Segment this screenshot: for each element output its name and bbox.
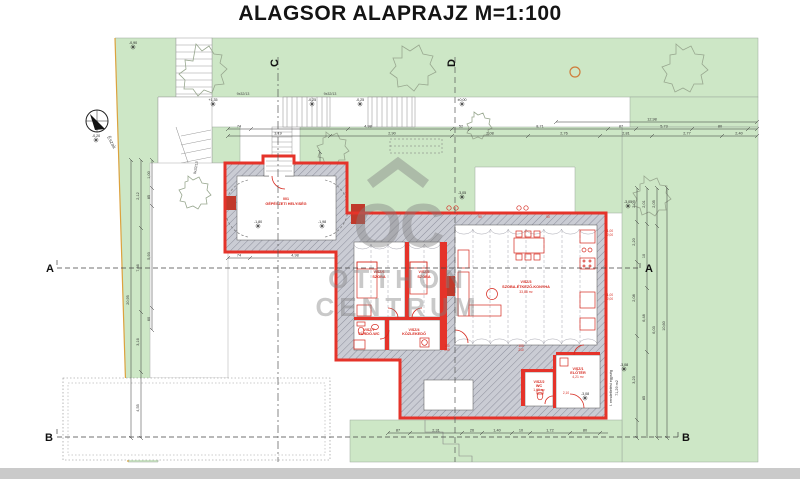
dimension-value: 1,00 [147,171,151,178]
dimension-value: 1,72 [546,429,553,433]
room-label-name: GÉPÉSZETI HELYISÉG [265,201,306,206]
section-label-a-right: A [645,263,653,275]
elevation-value: -3,05 [624,200,632,204]
door-size-label: 90 [478,215,482,219]
unit-note-line1: I. rendeltetési egység [609,370,613,406]
dimension-value: 2,08 [632,294,636,301]
green-mid-left [212,127,240,163]
elevation-value: ±0,00 [458,98,467,102]
stair-note: 9x32/13 [324,92,337,96]
dimension-value: 2,05 [632,200,636,207]
dimension-value: 3,16 [136,338,140,345]
dimension-value: 26 [470,429,474,433]
door-size-label: 2,00 [607,297,613,301]
dimension-value: 4,55 [136,404,140,411]
dimension-value: 2,40 [735,132,742,136]
spot-elevation: -0,20 [92,134,100,143]
elevation-value: -0,25 [356,98,364,102]
dimension-value: 5,93 [147,252,151,259]
door-size-label: 90 [546,215,550,219]
green-bottom-band [350,420,622,462]
section-label-b-left: B [45,432,53,444]
unit-note-line2: 71,29 m2 [615,380,619,396]
dimension-value: 3,23 [632,376,636,383]
dimension-value: 87 [396,429,400,433]
section-label-b-right: B [682,432,690,444]
elevation-value: -3,08 [620,363,628,367]
elevation-value: -0,20 [92,134,100,138]
chimney-block [225,196,236,210]
room-label-id: V/SZ/3 [521,280,532,284]
floorplan-drawing: 12,98744,98528,71875,73803,192,902,082,7… [0,0,800,468]
room-label-area: 33,88 m² [519,290,533,294]
elevation-value: -3,08 [581,392,589,396]
dimension-value: 2,20 [632,238,636,245]
dimension-value: 2,12 [136,192,140,199]
dimension-value: 20,95 [126,295,130,305]
dimension-value: 60 [147,317,151,321]
dimension-value: 5,73 [660,125,667,129]
elevation-value: -0,90 [129,41,137,45]
room-label-area: 1,60 m² [533,388,545,392]
light-well [424,380,473,410]
door-size-label: 2,00 [607,233,613,237]
dimension-value: 74 [237,254,241,258]
dimension-value: 2,76 [560,132,567,136]
dimension-value: 4,98 [364,125,371,129]
elevation-value: -1,98 [318,220,326,224]
dimension-value: 8,71 [536,125,543,129]
room-label-area: 4,21 m² [572,375,584,379]
section-label-a-left: A [46,263,54,275]
spot-elevation: -0,25 [356,98,364,107]
stair-block-2 [368,97,415,127]
dimension-chain: 744,98 [226,254,345,261]
room-eloter [556,355,600,408]
dimension-value: 80 [718,125,722,129]
dimension-value: 4,98 [291,254,298,258]
elevation-value: -3,05 [458,191,466,195]
door-gap [269,174,285,179]
green-top-right [630,97,758,127]
dimension-value: 1,40 [493,429,500,433]
dimension-value: 2,77 [683,132,690,136]
door-size-label: 210 [444,348,450,352]
dimension-value: 10 [519,429,523,433]
stair-note: 9x32/13 [237,92,250,96]
room-label-name: KÖZLEKEDŐ [402,331,426,336]
dimension-value: 2,31 [432,429,439,433]
door-size-label: 2,10 [563,391,569,395]
watermark-line2: CENTRUM [316,292,481,322]
dimension-value: 2,01 [642,200,646,207]
dimension-value: 74 [237,125,241,129]
dimension-value: 12,98 [647,118,657,122]
dimension-value: 10 [642,254,646,258]
dimension-value: 87 [619,125,623,129]
dimension-value: 10,60 [662,321,666,331]
dimension-value: 52 [459,125,463,129]
dimension-value: 85 [642,396,646,400]
elevation-value: -0,25 [308,98,316,102]
section-label-c: C [269,59,281,67]
north-arrow: Észak [86,110,118,150]
dimension-value: 85 [147,195,151,199]
upper-stair-strip [176,38,212,97]
floorplan-page: ALAGSOR ALAPRAJZ M=1:100 [0,0,800,479]
bottom-scrollbar[interactable] [0,468,800,479]
watermark-logo: OC [354,192,444,261]
dimension-value: 2,81 [622,132,629,136]
green-right-band [622,127,758,462]
watermark-line1: OTTHON [328,264,468,294]
room-gepeszet [237,176,336,240]
west-yard [150,163,228,378]
dimension-value: 80 [583,429,587,433]
terrace [63,378,330,460]
stair-block-1 [283,97,330,127]
dimension-value: 2,08 [486,132,493,136]
room-label-id: 001 [283,197,289,201]
dimension-value: 2,90 [388,132,395,136]
north-label: Észak [105,135,118,151]
dimension-value: 6,48 [642,314,646,321]
dimension-value: 2,05 [652,200,656,207]
door-size-label: 210 [518,348,524,352]
elevation-value: +1,35 [208,98,217,102]
section-label-d: D [446,59,458,67]
elevation-value: -1,80 [254,220,262,224]
dimension-value: 6,03 [652,326,656,333]
room-label-name: FÜRDŐ-WC [358,331,379,336]
room-label-name: SZOBA-ÉTKEZŐ-KONYHA [502,284,550,289]
spot-elevation: ±0,00 [458,98,467,107]
